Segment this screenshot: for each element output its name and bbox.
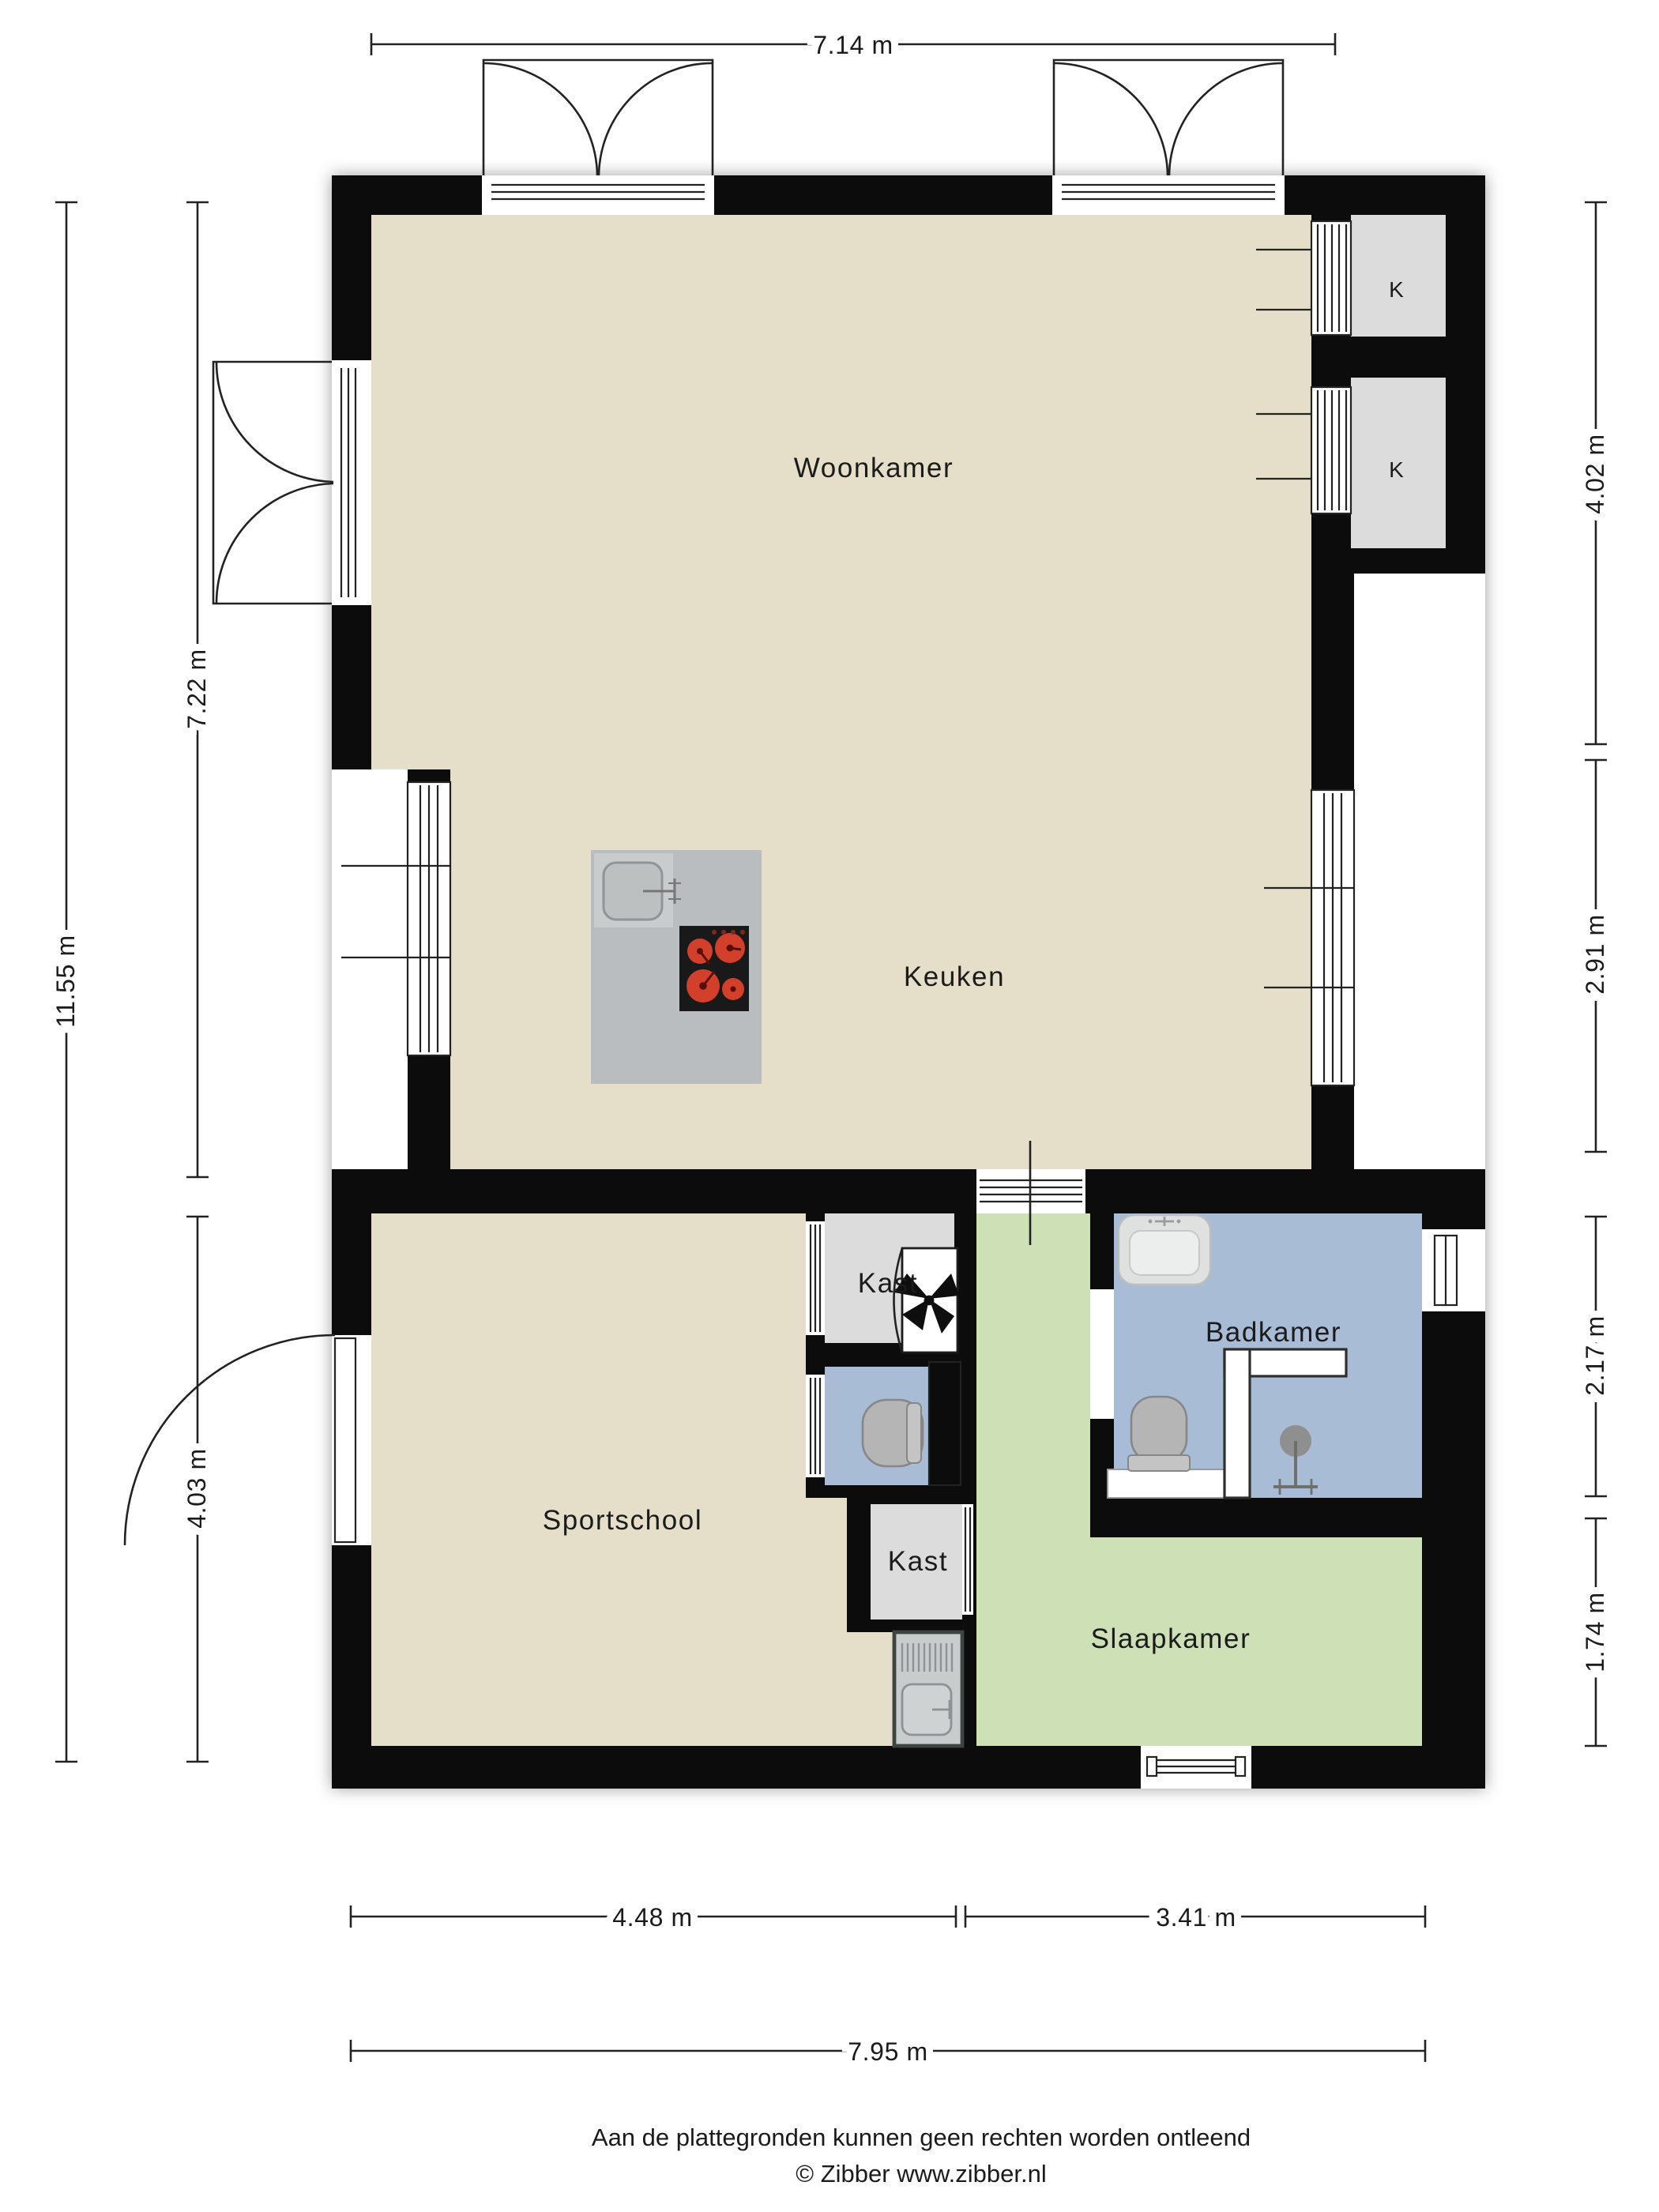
door-sportschool (125, 1335, 371, 1545)
dim-right-upper-label: 4.02 m (1581, 434, 1609, 513)
exterior-notch-right (1354, 574, 1485, 1169)
french-doors-top-left (482, 60, 714, 215)
dim-bottom-right-label: 3.41 m (1156, 1903, 1236, 1932)
cooktop-icon (679, 926, 749, 1011)
toilet-icon (863, 1400, 923, 1466)
label-keuken: Keuken (904, 961, 1005, 992)
label-badkamer: Badkamer (1206, 1317, 1341, 1348)
label-closet-k1: K (1389, 277, 1405, 302)
floorplan-page: Woonkamer Keuken K K Kast Kast Sportscho… (0, 0, 1659, 2212)
room-woonkamer-keuken (371, 215, 1311, 1169)
dim-bottom-left-label: 4.48 m (612, 1903, 692, 1932)
label-woonkamer: Woonkamer (794, 453, 954, 483)
bathroom-sink-icon (1119, 1215, 1210, 1285)
window-slaapkamer (1141, 1746, 1251, 1789)
french-doors-top-right (1052, 60, 1285, 215)
french-doors-left (213, 360, 371, 605)
footer: Aan de plattegronden kunnen geen rechten… (592, 2124, 1251, 2188)
floorplan-svg: Woonkamer Keuken K K Kast Kast Sportscho… (0, 0, 1659, 2212)
dim-bottom-total-label: 7.95 m (848, 2037, 927, 2066)
label-slaapkamer: Slaapkamer (1091, 1623, 1251, 1654)
dim-right-lower-lower-label: 1.74 m (1581, 1592, 1609, 1672)
vent-panel-toilet (806, 1375, 825, 1477)
room-closet-k1 (1351, 215, 1446, 337)
dim-right-middle-label: 2.91 m (1581, 914, 1609, 994)
sliding-door-badkamer (1090, 1289, 1114, 1419)
dim-top-label: 7.14 m (813, 31, 893, 59)
sliding-door-kast-lower (962, 1504, 973, 1615)
footer-copyright: © Zibber www.zibber.nl (796, 2160, 1046, 2188)
kitchen-island-icon (591, 850, 762, 1084)
dim-left-upper-label: 7.22 m (182, 649, 211, 728)
label-kast-lower: Kast (888, 1546, 948, 1577)
dim-right-lower-upper-label: 2.17 m (1581, 1315, 1609, 1395)
kitchenette-icon (894, 1632, 962, 1746)
shower-tray (1108, 1469, 1224, 1498)
dim-left-total-label: 11.55 m (51, 935, 80, 1027)
vent-panel-kast-upper (806, 1221, 825, 1335)
toilet-badkamer-icon (1128, 1397, 1190, 1471)
dim-left-lower-label: 4.03 m (182, 1448, 211, 1528)
footer-disclaimer: Aan de plattegronden kunnen geen rechten… (592, 2124, 1251, 2151)
window-badkamer (1422, 1229, 1485, 1311)
exterior-notch-left (332, 769, 408, 1169)
label-closet-k2: K (1389, 457, 1405, 482)
label-sportschool: Sportschool (543, 1505, 702, 1536)
label-kast-upper: Kast (858, 1268, 918, 1299)
